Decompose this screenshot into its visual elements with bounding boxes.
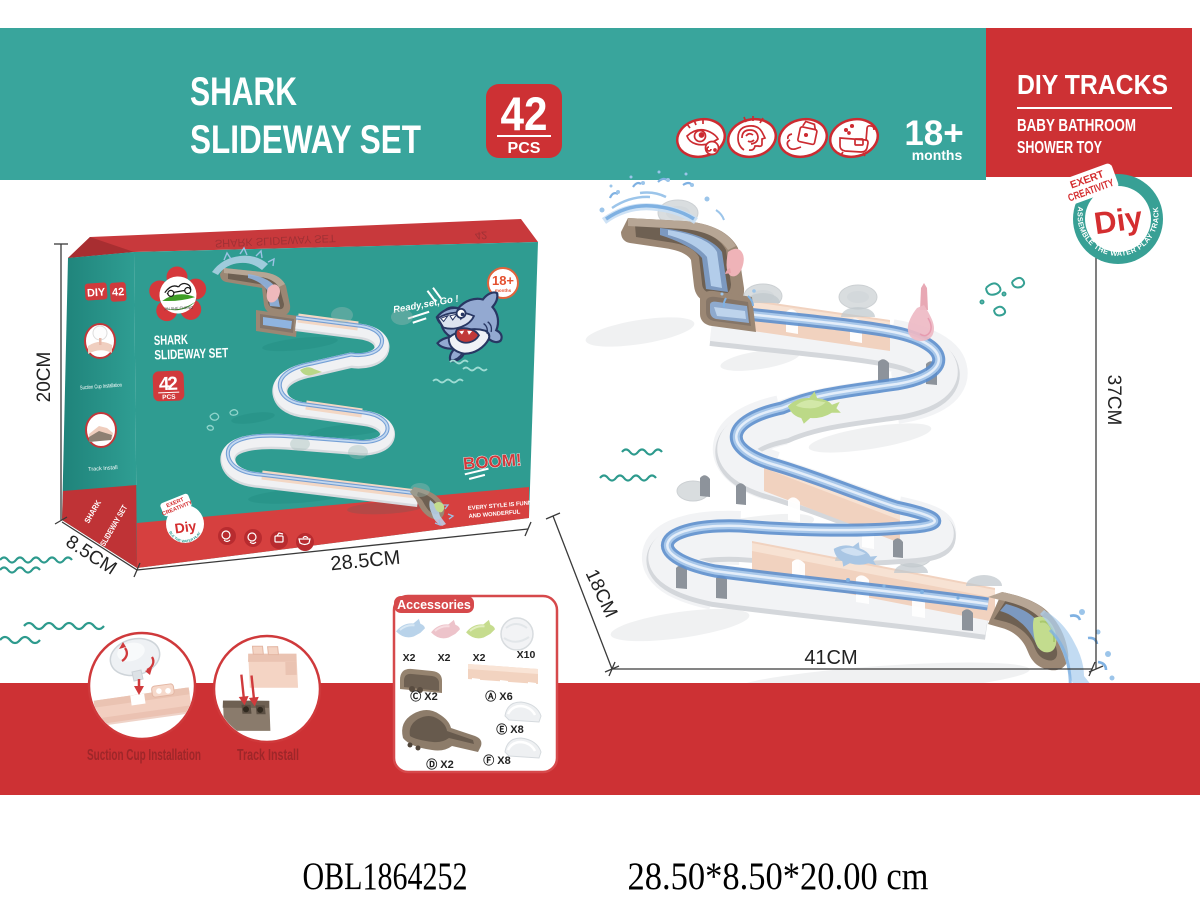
svg-text:months: months bbox=[912, 147, 963, 163]
svg-text:DIY: DIY bbox=[87, 286, 107, 299]
svg-text:PCS: PCS bbox=[508, 140, 541, 157]
svg-text:SHOWER TOY: SHOWER TOY bbox=[1017, 137, 1102, 157]
svg-text:X10: X10 bbox=[517, 649, 536, 661]
svg-text:Diy: Diy bbox=[1092, 200, 1145, 241]
svg-text:Ⓐ X6: Ⓐ X6 bbox=[485, 689, 513, 703]
svg-text:SHARK: SHARK bbox=[190, 70, 297, 114]
svg-text:18+: 18+ bbox=[492, 273, 514, 288]
svg-text:Accessories: Accessories bbox=[397, 598, 471, 612]
svg-text:42: 42 bbox=[501, 87, 548, 140]
svg-text:DIY TRACKS: DIY TRACKS bbox=[1017, 69, 1168, 100]
svg-text:SHARK: SHARK bbox=[154, 332, 189, 348]
svg-text:SLIDEWAY SET: SLIDEWAY SET bbox=[154, 345, 229, 362]
svg-text:X2: X2 bbox=[403, 652, 416, 664]
svg-text:42: 42 bbox=[475, 228, 488, 241]
svg-text:28.50*8.50*20.00 cm: 28.50*8.50*20.00 cm bbox=[628, 855, 929, 898]
svg-text:Track Install: Track Install bbox=[237, 747, 299, 764]
svg-text:Ⓔ X8: Ⓔ X8 bbox=[496, 722, 524, 736]
svg-text:Ⓓ X2: Ⓓ X2 bbox=[426, 757, 454, 771]
svg-text:X2: X2 bbox=[438, 652, 451, 664]
svg-text:Ⓕ X8: Ⓕ X8 bbox=[483, 753, 511, 767]
svg-text:Diy: Diy bbox=[174, 518, 198, 537]
svg-text:42: 42 bbox=[112, 286, 125, 299]
svg-text:PCS: PCS bbox=[162, 394, 176, 401]
svg-text:20CM: 20CM bbox=[34, 352, 55, 403]
svg-text:41CM: 41CM bbox=[804, 647, 857, 669]
svg-text:OBL1864252: OBL1864252 bbox=[303, 855, 468, 898]
svg-text:37CM: 37CM bbox=[1103, 375, 1124, 426]
svg-text:Suction Cup Installation: Suction Cup Installation bbox=[87, 747, 201, 764]
svg-text:BABY BATHROOM: BABY BATHROOM bbox=[1017, 115, 1136, 135]
svg-text:X2: X2 bbox=[473, 652, 486, 664]
svg-text:Ⓒ X2: Ⓒ X2 bbox=[410, 689, 438, 703]
svg-text:SLIDEWAY SET: SLIDEWAY SET bbox=[190, 118, 421, 162]
